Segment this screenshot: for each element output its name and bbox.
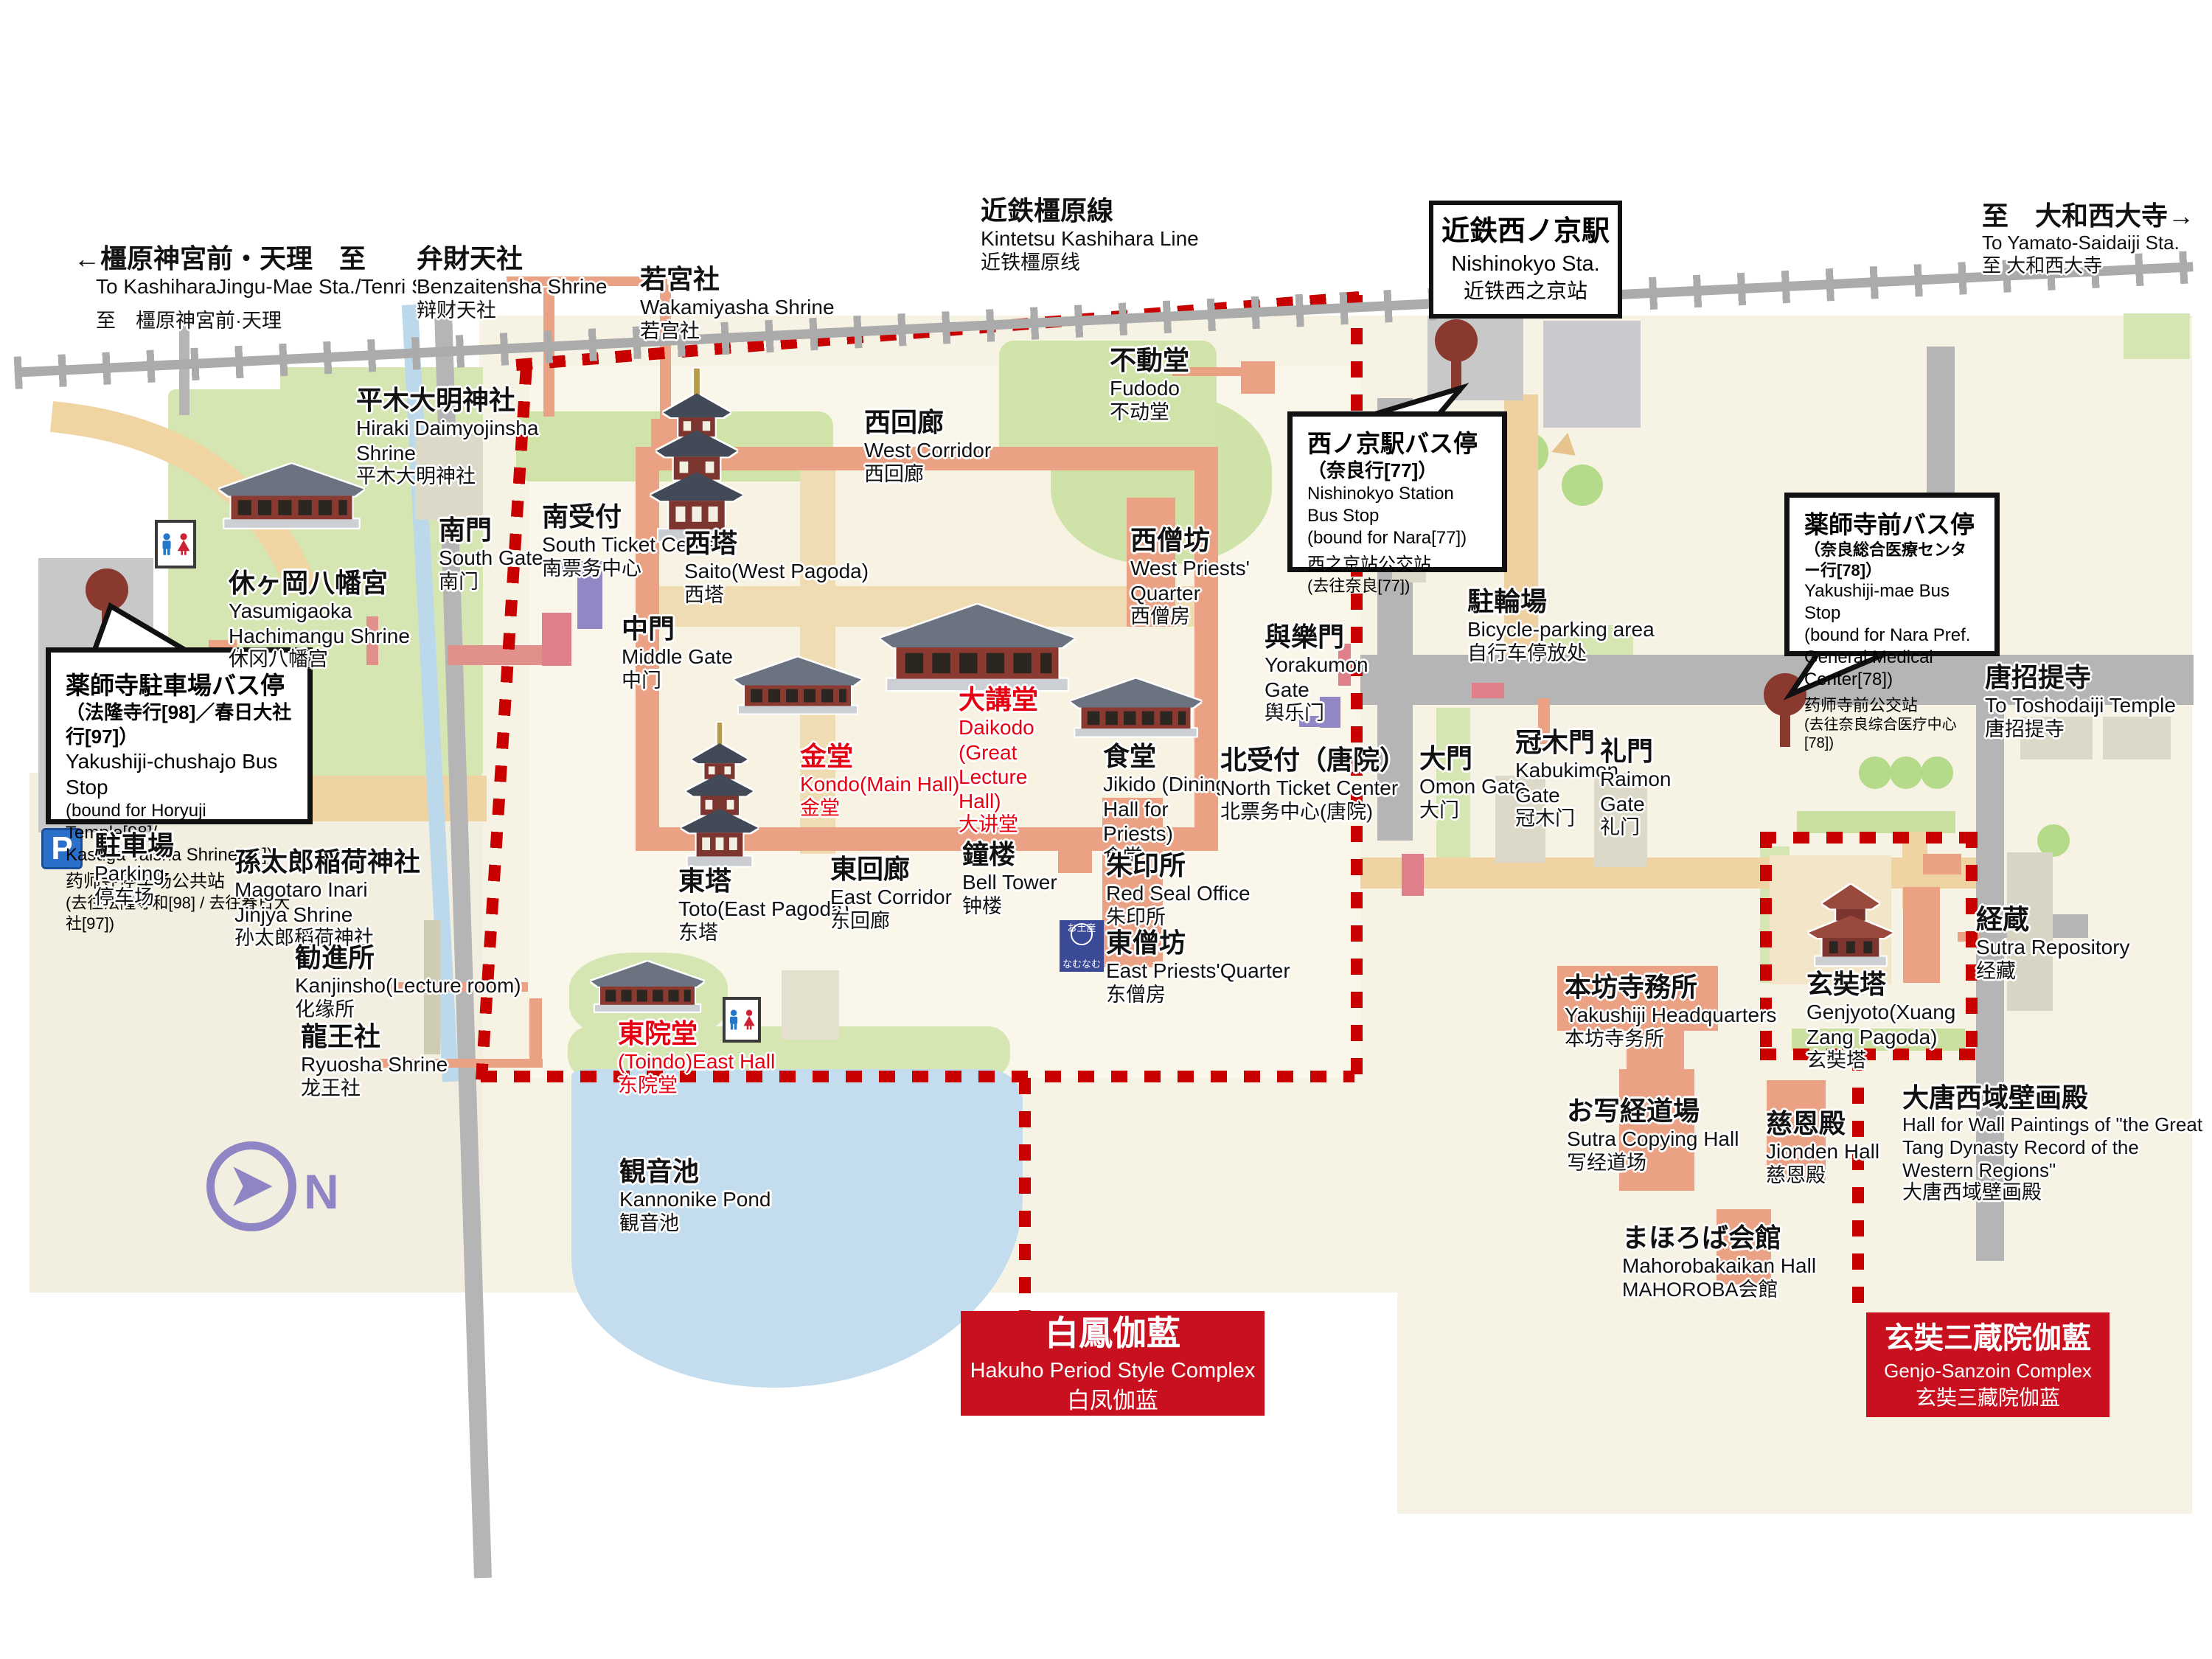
hakuho-en: Hakuho Period Style Complex <box>970 1357 1256 1385</box>
label-saito-west-pagoda: 西塔Saito(West Pagoda)西塔 <box>684 528 869 607</box>
bus-stop-pole <box>1451 358 1461 393</box>
station-name-cn: 近铁西之京站 <box>1464 278 1587 305</box>
callout-yakushiji-mae-bus-stop: 薬師寺前バス停 （奈良総合医療センター行[78]） Yakushiji-mae … <box>1784 493 2000 656</box>
green-strip-east <box>1797 811 1955 833</box>
hachimangu-hall-icon <box>216 435 367 557</box>
label-east-priests-quarter: 東僧坊East Priests'Quarter东僧房 <box>1106 928 1290 1006</box>
label-bell-tower: 鐘楼Bell Tower钟楼 <box>962 839 1057 918</box>
label-mahoroba-hall: まほろば会館Mahorobakaikan HallMAHOROBA会館 <box>1622 1222 1816 1301</box>
banner-genjo-sanzoin-complex: 玄奘三蔵院伽藍 Genjo-Sanzoin Complex 玄奘三藏院伽蓝 <box>1866 1312 2110 1417</box>
nishinokyo-bus-cn: 西之京站公交站 <box>1307 554 1487 576</box>
chushajo-jp: 薬師寺駐車場バス停 <box>66 670 293 700</box>
label-jionden-hall: 慈恩殿Jionden Hall慈恩殿 <box>1766 1108 1879 1187</box>
label-hiraki-shrine: 平木大明神社Hiraki Daimyojinsha Shrine平木大明神社 <box>356 385 570 488</box>
label-benzaitensha: 弁財天社Benzaitensha Shrine辩财天社 <box>417 243 607 322</box>
hakuho-cn: 白凤伽蓝 <box>1067 1385 1158 1416</box>
bus-stop-head <box>1435 319 1478 362</box>
toilet-figures <box>159 532 192 557</box>
omon-gate-block <box>1402 854 1424 896</box>
chushajo-jp2: （法隆寺行[98]／春日大社行[97]） <box>66 700 293 748</box>
bus-stop-marker-chushajo <box>86 568 128 642</box>
label-headquarters: 本坊寺務所Yakushiji Headquarters本坊寺务所 <box>1565 972 1776 1051</box>
label-yorakumon-gate: 與樂門Yorakumon Gate舆乐门 <box>1265 622 1394 725</box>
bell-tower-building <box>1058 830 1092 873</box>
label-south-gate: 南門South Gate南门 <box>439 515 543 594</box>
building <box>782 970 839 1040</box>
compass-needle-icon <box>223 1158 279 1214</box>
label-ryuosha: 龍王社Ryuosha Shrine龙王社 <box>301 1021 448 1100</box>
green-tree-4 <box>1890 757 1922 789</box>
label-west-priests-quarter: 西僧坊West Priests' Quarter西僧房 <box>1130 525 1263 628</box>
label-north-ticket-center: 北受付（唐院）North Ticket Center北票务中心(唐院) <box>1220 745 1406 824</box>
hakuho-banner-connector <box>1019 1078 1031 1312</box>
chushajo-en: Yakushiji-chushajo Bus Stop <box>66 748 293 800</box>
bus-stop-marker-nishinokyo <box>1435 319 1478 393</box>
nishinokyo-bus-jp2: （奈良行[77]） <box>1307 459 1487 483</box>
nishinokyo-bus-cn2: (去往奈良[77]) <box>1307 576 1487 597</box>
label-toshodaiji: 唐招提寺To Toshodaiji Temple唐招提寺 <box>1985 662 2176 741</box>
callout-nishinokyo-bus-stop: 西ノ京駅バス停 （奈良行[77]） Nishinokyo Station Bus… <box>1287 411 1507 572</box>
bus-stop-head <box>1764 673 1806 716</box>
genjo-cn: 玄奘三藏院伽蓝 <box>1916 1384 2060 1412</box>
label-yasumigaoka: 休ヶ岡八幡宮Yasumigaoka Hachimangu Shrine休冈八幡宫 <box>229 568 413 671</box>
yakushiji-mae-jp2: （奈良総合医療センター行[78]） <box>1804 540 1980 580</box>
bus-stop-head <box>86 568 128 611</box>
kabukimon-gate-block <box>1472 683 1504 698</box>
station-name-jp: 近鉄西ノ京駅 <box>1441 214 1610 250</box>
label-kannonike-pond: 観音池Kannonike Pond観音池 <box>619 1156 771 1235</box>
label-wall-paintings-hall: 大唐西域壁画殿Hall for Wall Paintings of "the G… <box>1902 1082 2212 1205</box>
bus-stop-pole <box>1780 712 1790 747</box>
compass-icon <box>206 1141 296 1231</box>
station-name-en: Nishinokyo Sta. <box>1451 251 1600 279</box>
station-building <box>1543 321 1641 428</box>
genjo-jp: 玄奘三蔵院伽藍 <box>1885 1318 2091 1358</box>
label-bicycle-parking: 駐輪場Bicycle-parking area自行车停放处 <box>1467 586 1655 665</box>
genjo-en: Genjo-Sanzoin Complex <box>1884 1358 2092 1384</box>
yakushiji-mae-cn: 药师寺前公交站 <box>1804 695 1980 716</box>
east-pagoda-icon <box>672 723 767 870</box>
south-ticket-block <box>542 613 571 666</box>
genjo-boundary-top <box>1760 832 1978 844</box>
toilet-icon-west <box>155 520 196 568</box>
label-magotaro-inari: 孫太郎稲荷神社Magotaro Inari Jinjya Shrine孙太郎稻荷… <box>234 846 404 950</box>
nishinokyo-bus-en2: (bound for Nara[77]) <box>1307 527 1487 549</box>
hakuho-boundary-south <box>481 1071 1354 1082</box>
compass-north-label: N <box>304 1164 339 1220</box>
bus-stop-pole <box>102 607 112 642</box>
label-to-yamato-saidaiji: 至 大和西大寺→To Yamato-Saidaiji Sta.至 大和西大寺 <box>1982 201 2194 277</box>
label-omon-gate: 大門Omon Gate大门 <box>1419 743 1526 822</box>
ryuosha-block <box>529 998 542 1062</box>
bus-stop-marker-yakushiji-mae <box>1764 673 1806 747</box>
shop-label-bottom: なむなむ <box>1062 959 1101 969</box>
callout-nishinokyo-station: 近鉄西ノ京駅 Nishinokyo Sta. 近铁西之京站 <box>1429 201 1622 319</box>
label-toto-east-pagoda: 東塔Toto(East Pagoda)东塔 <box>678 866 849 945</box>
daikodo-hall-icon <box>876 596 1079 699</box>
label-wakamiyasha: 若宮社Wakamiyasha Shrine若宫社 <box>640 264 835 343</box>
yakushiji-mae-cn2: (去往奈良综合医疗中心[78]) <box>1804 716 1980 753</box>
label-kondo-main-hall: 金堂Kondo(Main Hall)金堂 <box>800 741 959 820</box>
yakushiji-mae-en3: General Medical Center[78]) <box>1804 647 1980 691</box>
label-fudodo: 不動堂Fudodo不动堂 <box>1110 345 1189 424</box>
genjo-stub <box>1923 854 1961 874</box>
label-middle-gate: 中門Middle Gate中门 <box>622 613 733 692</box>
green-tree-3 <box>1859 757 1891 789</box>
shop-crest-icon <box>1071 923 1093 945</box>
nishinokyo-bus-en: Nishinokyo Station Bus Stop <box>1307 483 1487 527</box>
souvenir-shop-icon: お土産 なむなむ <box>1060 920 1104 972</box>
label-raimon-gate: 礼門Raimon Gate礼门 <box>1600 736 1692 839</box>
green-northeast <box>2124 313 2190 359</box>
label-sutra-repository: 経蔵Sutra Repository经藏 <box>1976 904 2130 983</box>
nishinokyo-bus-jp: 西ノ京駅バス停 <box>1307 428 1487 459</box>
hakuho-jp: 白鳳伽藍 <box>1045 1310 1180 1356</box>
callout-chushajo-bus-stop: 薬師寺駐車場バス停 （法隆寺行[98]／春日大社行[97]） Yakushiji… <box>46 647 313 824</box>
label-to-kashihara: ←橿原神宮前・天理 至 To KashiharaJingu-Mae Sta./T… <box>74 243 448 333</box>
fudodo-building <box>1241 361 1275 394</box>
kondo-hall-icon <box>731 643 864 728</box>
green-tree-5 <box>1921 757 1953 789</box>
yakushiji-mae-en2: (bound for Nara Pref. <box>1804 625 1980 647</box>
label-red-seal-office: 朱印所Red Seal Office朱印所 <box>1106 850 1251 929</box>
label-kanjinsho: 勧進所Kanjinsho(Lecture room)化缘所 <box>295 942 521 1021</box>
label-genjyoto: 玄奘塔Genjyoto(Xuang Zang Pagoda)玄奘塔 <box>1806 969 1965 1072</box>
green-tree-2 <box>1562 465 1603 506</box>
toindo-hall-icon <box>588 957 706 1016</box>
label-daikodo: 大講堂Daikodo (Great Lecture Hall)大讲堂 <box>959 684 1069 836</box>
yakushiji-mae-jp: 薬師寺前バス停 <box>1804 509 1980 540</box>
label-sutra-copying-hall: お写経道場Sutra Copying Hall写经道场 <box>1567 1096 1739 1175</box>
yakushiji-mae-en: Yakushiji-mae Bus Stop <box>1804 580 1980 625</box>
label-toindo-east-hall: 東院堂(Toindo)East Hall东院堂 <box>618 1018 775 1097</box>
south-approach <box>448 645 551 665</box>
label-kintetsu-line: 近鉄橿原線Kintetsu Kashihara Line近铁橿原线 <box>981 195 1199 274</box>
yakushiji-temple-area-map: P お土産 なむなむ N 近鉄西ノ京駅 Nishinokyo Sta. 近铁西之… <box>0 0 2212 1659</box>
jikido-hall-icon <box>1068 672 1204 742</box>
banner-hakuho-complex: 白鳳伽藍 Hakuho Period Style Complex 白凤伽蓝 <box>961 1311 1265 1416</box>
label-west-corridor: 西回廊West Corridor西回廊 <box>864 407 991 486</box>
label-parking: 駐車場Parking停车场 <box>94 830 174 909</box>
genjyoto-pavilion-icon <box>1804 877 1898 967</box>
label-east-corridor: 東回廊East Corridor东回廊 <box>830 854 952 933</box>
